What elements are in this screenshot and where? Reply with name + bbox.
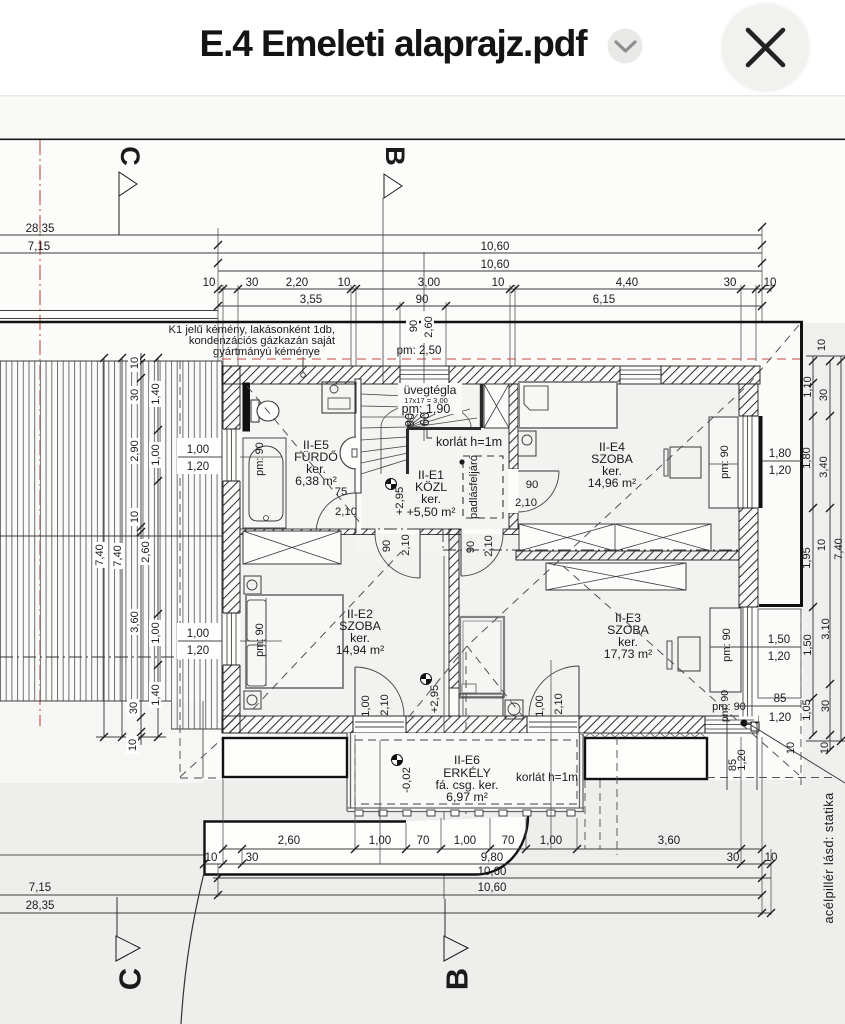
svg-text:30: 30 (128, 702, 140, 714)
svg-text:1,80: 1,80 (801, 447, 813, 468)
svg-text:B: B (440, 968, 475, 990)
svg-text:28,35: 28,35 (26, 223, 55, 235)
svg-text:2,10: 2,10 (400, 534, 412, 555)
svg-text:2,10: 2,10 (553, 693, 565, 714)
svg-text:+2,95: +2,95 (394, 487, 406, 516)
svg-text:acélpillér lásd: statika: acélpillér lásd: statika (821, 792, 836, 924)
svg-text:pm: 90: pm: 90 (712, 701, 746, 713)
svg-text:E.4 Emeleti alaprajz.pdf: E.4 Emeleti alaprajz.pdf (200, 23, 589, 64)
svg-text:3,40: 3,40 (818, 456, 830, 477)
svg-text:6,38 m²: 6,38 m² (295, 474, 337, 488)
svg-text:1,00: 1,00 (150, 622, 162, 643)
svg-text:10: 10 (765, 852, 778, 864)
svg-text:10,60: 10,60 (478, 882, 507, 894)
svg-text:1,00: 1,00 (369, 835, 391, 847)
svg-text:7,40: 7,40 (94, 544, 106, 565)
svg-text:2,10: 2,10 (335, 506, 357, 518)
svg-text:1,40: 1,40 (150, 383, 162, 404)
svg-text:10: 10 (338, 277, 351, 289)
svg-text:85: 85 (774, 693, 787, 705)
svg-text:1,05: 1,05 (801, 699, 813, 720)
svg-text:30: 30 (727, 852, 740, 864)
svg-text:2,10: 2,10 (483, 535, 495, 556)
svg-text:4,40: 4,40 (616, 277, 638, 289)
svg-text:7,15: 7,15 (29, 882, 51, 894)
svg-text:1,00: 1,00 (187, 444, 209, 456)
svg-text:90: 90 (408, 320, 420, 332)
svg-text:90: 90 (403, 413, 417, 427)
svg-text:+5,50 m²: +5,50 m² (407, 505, 456, 519)
svg-text:7,40: 7,40 (833, 538, 845, 559)
svg-text:10,60: 10,60 (481, 241, 510, 253)
svg-text:30: 30 (724, 277, 737, 289)
svg-text:30: 30 (246, 277, 259, 289)
svg-text:6,15: 6,15 (593, 294, 615, 306)
svg-text:1,95: 1,95 (801, 547, 813, 568)
svg-text:3,10: 3,10 (820, 618, 832, 639)
svg-text:90: 90 (416, 294, 429, 306)
svg-text:10: 10 (816, 539, 828, 551)
svg-text:14,94 m²: 14,94 m² (336, 643, 385, 657)
svg-text:üvegtégla: üvegtégla (404, 383, 457, 397)
svg-text:pm: 2,50: pm: 2,50 (397, 345, 442, 357)
svg-text:90: 90 (381, 540, 393, 552)
svg-text:1,20: 1,20 (187, 645, 209, 657)
svg-text:3,60: 3,60 (129, 611, 141, 632)
svg-text:1,00: 1,00 (454, 835, 476, 847)
svg-text:17,73 m²: 17,73 m² (604, 647, 653, 661)
svg-text:10: 10 (785, 742, 797, 754)
svg-text:10: 10 (205, 852, 218, 864)
svg-text:2,10: 2,10 (379, 694, 391, 715)
svg-text:1,10: 1,10 (802, 376, 814, 397)
svg-text:10: 10 (819, 742, 831, 754)
svg-text:B: B (380, 146, 410, 166)
svg-text:1,00: 1,00 (540, 835, 562, 847)
svg-text:ker.: ker. (421, 492, 441, 506)
svg-text:70: 70 (502, 835, 515, 847)
svg-text:10: 10 (129, 511, 141, 523)
svg-text:pm: 90: pm: 90 (254, 442, 266, 476)
svg-text:1,50: 1,50 (802, 634, 814, 655)
svg-text:2,60: 2,60 (278, 835, 300, 847)
svg-text:10: 10 (492, 277, 505, 289)
svg-text:30: 30 (246, 852, 259, 864)
svg-text:90: 90 (526, 479, 539, 491)
svg-text:10: 10 (127, 739, 139, 751)
svg-text:10,60: 10,60 (481, 259, 510, 271)
svg-text:2,10: 2,10 (515, 497, 537, 509)
svg-text:10: 10 (129, 357, 141, 369)
svg-text:1,20: 1,20 (768, 651, 790, 663)
svg-text:3,00: 3,00 (418, 277, 440, 289)
svg-text:+2,95: +2,95 (429, 685, 441, 714)
svg-text:10: 10 (816, 339, 828, 351)
svg-text:C: C (113, 968, 148, 990)
svg-text:C: C (115, 146, 145, 166)
svg-text:3,55: 3,55 (300, 294, 322, 306)
svg-text:gyártmányú kéménye: gyártmányú kéménye (213, 346, 320, 358)
svg-text:14,96 m²: 14,96 m² (588, 476, 637, 490)
svg-text:1,20: 1,20 (769, 465, 791, 477)
svg-text:1,20: 1,20 (736, 749, 748, 770)
svg-text:1,20: 1,20 (187, 461, 209, 473)
svg-text:1,00: 1,00 (187, 628, 209, 640)
svg-text:1,00: 1,00 (534, 695, 546, 716)
svg-text:7,40: 7,40 (112, 545, 124, 566)
svg-text:7,15: 7,15 (28, 241, 50, 253)
svg-text:1,00: 1,00 (360, 695, 372, 716)
svg-text:2,90: 2,90 (129, 440, 141, 461)
svg-text:korlát h=1m: korlát h=1m (516, 770, 578, 784)
svg-text:1,20: 1,20 (769, 712, 791, 724)
svg-text:3,60: 3,60 (658, 835, 680, 847)
svg-text:9,80: 9,80 (481, 852, 503, 864)
svg-text:10: 10 (764, 277, 777, 289)
svg-text:1,80: 1,80 (769, 448, 791, 460)
svg-text:60: 60 (418, 412, 432, 426)
svg-text:korlát h=1m: korlát h=1m (436, 435, 502, 449)
svg-text:28,35: 28,35 (26, 900, 55, 912)
svg-text:pm: 90: pm: 90 (721, 628, 733, 662)
svg-text:10,60: 10,60 (478, 866, 507, 878)
svg-text:10: 10 (203, 277, 216, 289)
svg-text:1,00: 1,00 (150, 444, 162, 465)
svg-text:1,50: 1,50 (768, 634, 790, 646)
svg-text:padlásfeljáró: padlásfeljáró (468, 455, 480, 519)
svg-text:2,20: 2,20 (286, 277, 308, 289)
svg-text:70: 70 (417, 835, 430, 847)
svg-text:90: 90 (465, 541, 477, 553)
svg-text:II-E6: II-E6 (454, 753, 480, 767)
svg-text:2,60: 2,60 (423, 316, 435, 337)
svg-text:-0,02: -0,02 (401, 767, 413, 793)
svg-text:2,60: 2,60 (140, 541, 152, 562)
svg-text:pm: 90: pm: 90 (254, 623, 266, 657)
svg-text:6,97 m²: 6,97 m² (446, 790, 488, 804)
svg-text:30: 30 (129, 389, 141, 401)
svg-text:30: 30 (818, 389, 830, 401)
svg-text:pm: 90: pm: 90 (719, 445, 731, 479)
svg-text:1,40: 1,40 (150, 684, 162, 705)
svg-text:30: 30 (820, 700, 832, 712)
